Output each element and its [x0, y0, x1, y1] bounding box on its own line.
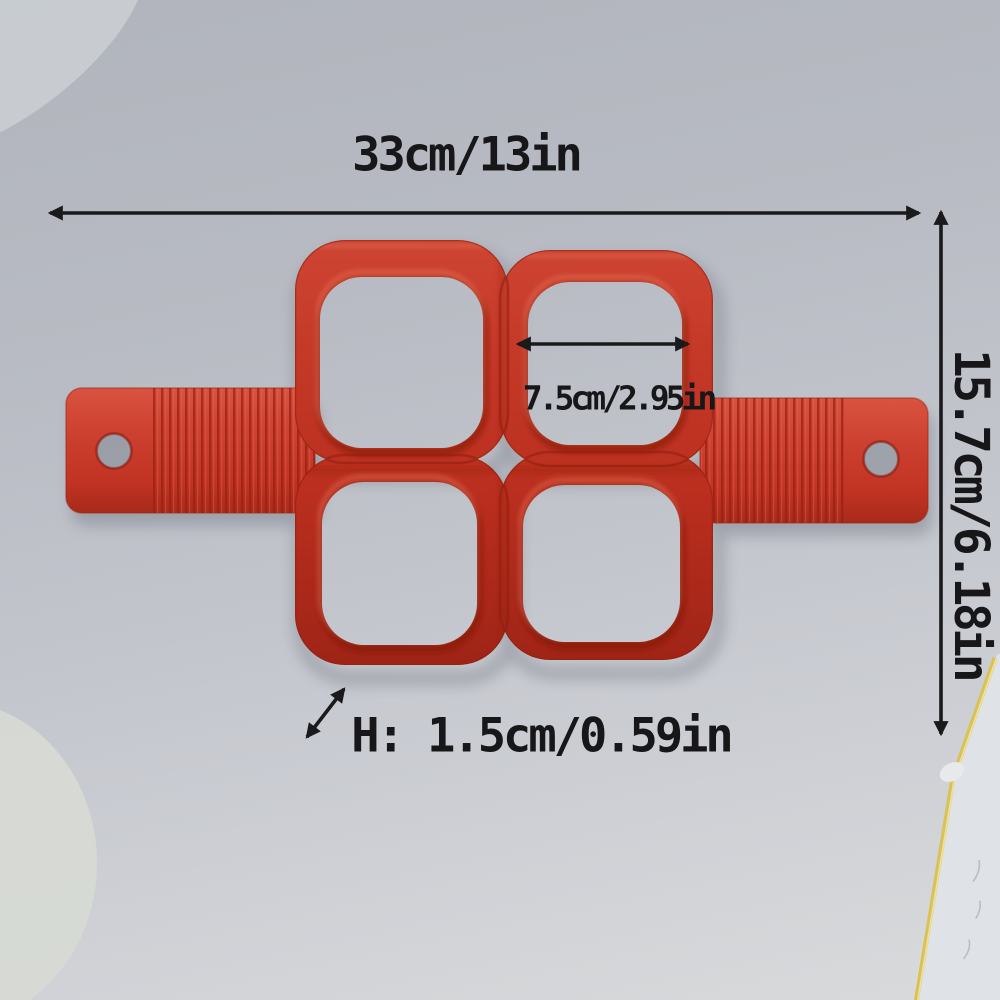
height-dimension-label: 15.7cm/6.18in	[943, 349, 999, 679]
thickness-dimension-label: H: 1.5cm/0.59in	[351, 709, 730, 764]
white-sheet-corner-top-left	[0, 0, 140, 135]
cavity-width-dimension-label: 7.5cm/2.95in	[523, 379, 713, 418]
thickness-dimension-arrow	[307, 689, 344, 737]
pancake-mold-body	[280, 225, 730, 685]
plate-edge-bottom-left	[0, 701, 97, 1000]
product-photo-scene: 33cm/13in 15.7cm/6.18in 7.5cm/2.95in H: …	[0, 0, 1000, 1000]
width-dimension-label: 33cm/13in	[352, 128, 580, 183]
